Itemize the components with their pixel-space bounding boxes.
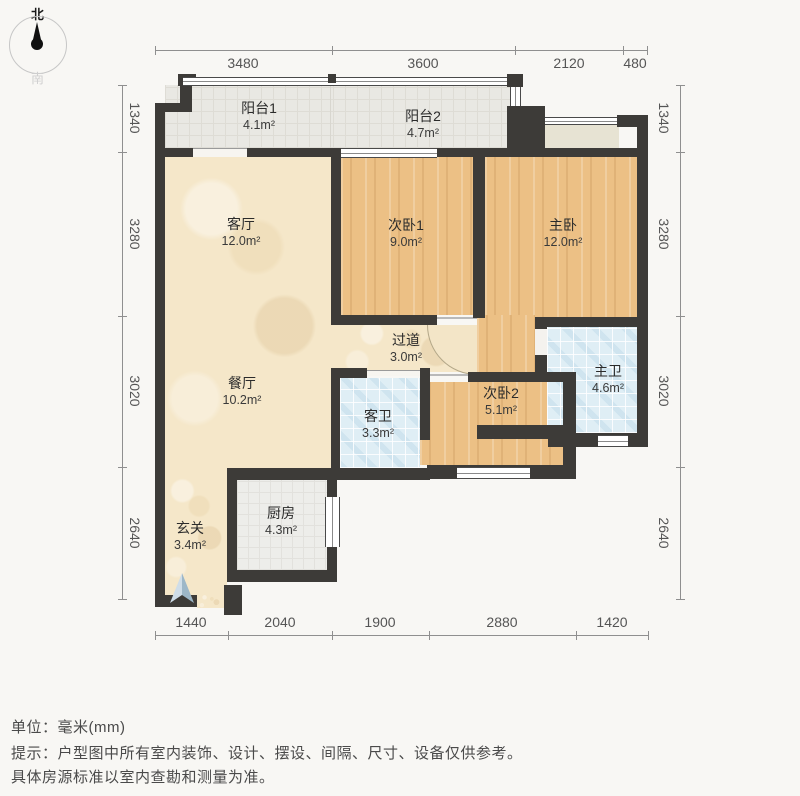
- bedroom2-door-lintel: [430, 374, 468, 376]
- wall-entry-block: [224, 585, 242, 615]
- room-label-balcony2: 阳台2 4.7m²: [405, 108, 441, 141]
- dim-tick: [676, 467, 685, 468]
- dim-right-1: 1340: [656, 102, 672, 133]
- dim-tick: [429, 631, 430, 640]
- dim-bottom-4: 2880: [486, 614, 517, 630]
- dim-tick: [332, 46, 333, 55]
- dim-tick: [118, 316, 127, 317]
- room-name: 厨房: [265, 505, 297, 523]
- wall-bedroom1-master-divider: [473, 148, 485, 318]
- room-area: 4.3m²: [265, 523, 297, 539]
- room-area: 9.0m²: [388, 235, 424, 251]
- bedroom-corridor-floor: [477, 315, 535, 372]
- room-name: 玄关: [174, 520, 206, 538]
- room-area: 4.7m²: [405, 126, 441, 142]
- bedroom1-door-lintel: [437, 317, 477, 319]
- room-name: 阳台2: [405, 108, 441, 126]
- kitchen-door: [325, 497, 340, 547]
- dim-tick: [648, 631, 649, 640]
- entry-arrow-icon: [168, 572, 196, 606]
- wall-balcony-bottom-seg3: [437, 148, 648, 157]
- room-name: 次卧1: [388, 217, 424, 235]
- compass-needle-dot: [31, 38, 43, 50]
- dim-right-2: 3280: [656, 218, 672, 249]
- dim-tick: [647, 46, 648, 55]
- room-name: 主卧: [544, 217, 583, 235]
- room-area: 4.1m²: [241, 118, 277, 134]
- room-area: 12.0m²: [222, 234, 261, 250]
- guestbath-door: [367, 370, 420, 376]
- balcony-right-window: [510, 87, 521, 108]
- dim-right-3: 3020: [656, 375, 672, 406]
- floorplan-page: { "compass": {"north": "北", "south": "南"…: [0, 0, 800, 796]
- bedroom2-window: [457, 467, 530, 479]
- room-label-guest-bath: 客卫 3.3m²: [362, 408, 394, 441]
- room-label-hallway: 过道 3.0m²: [390, 332, 422, 365]
- room-area: 3.0m²: [390, 350, 422, 366]
- dim-tick: [676, 85, 685, 86]
- room-name: 次卧2: [483, 385, 519, 403]
- wall-balcony-bottom-seg1: [165, 148, 193, 157]
- room-label-master-bath: 主卫 4.6m²: [592, 363, 624, 396]
- footer-disclaimer-2: 具体房源标准以室内查勘和测量为准。: [11, 766, 275, 787]
- dim-line-right: [680, 85, 681, 599]
- balcony-top-window: [183, 77, 511, 86]
- room-label-bedroom2: 次卧2 5.1m²: [483, 385, 519, 418]
- room-label-entry: 玄关 3.4m²: [174, 520, 206, 553]
- room-area: 4.6m²: [592, 381, 624, 397]
- dim-top-1: 3480: [227, 55, 258, 71]
- dim-left-3: 3020: [127, 375, 143, 406]
- wall-bedroom1-bottom: [331, 315, 437, 325]
- room-area: 12.0m²: [544, 235, 583, 251]
- entry-door-patch: [197, 595, 224, 608]
- dim-tick: [155, 46, 156, 55]
- room-label-kitchen: 厨房 4.3m²: [265, 505, 297, 538]
- dim-left-2: 3280: [127, 218, 143, 249]
- wall-balcony-bottom-seg2: [247, 148, 337, 157]
- wall-bedroom1-left: [331, 148, 341, 325]
- room-name: 过道: [390, 332, 422, 350]
- dim-tick: [118, 467, 127, 468]
- dim-tick: [676, 316, 685, 317]
- dim-bottom-2: 2040: [264, 614, 295, 630]
- dim-left-1: 1340: [127, 102, 143, 133]
- balcony-divider-line: [330, 85, 331, 148]
- dim-top-2: 3600: [407, 55, 438, 71]
- dim-tick: [155, 631, 156, 640]
- room-label-balcony1: 阳台1 4.1m²: [241, 100, 277, 133]
- dim-right-4: 2640: [656, 517, 672, 548]
- wall-kitchen-left: [227, 468, 237, 582]
- bay-recess-window: [545, 117, 619, 125]
- dim-line-left: [122, 85, 123, 599]
- dim-tick: [228, 631, 229, 640]
- wall-bedroom2-top: [468, 372, 540, 382]
- living-dining-floor: [165, 152, 331, 468]
- wall-masterbath-left-upper: [535, 317, 547, 329]
- room-name: 客厅: [222, 216, 261, 234]
- room-area: 3.3m²: [362, 426, 394, 442]
- room-label-master: 主卧 12.0m²: [544, 217, 583, 250]
- room-label-dining: 餐厅 10.2m²: [223, 375, 262, 408]
- dim-tick: [118, 152, 127, 153]
- wall-bedroom2-left: [420, 368, 430, 440]
- dim-tick: [676, 599, 685, 600]
- dim-top-3: 2120: [553, 55, 584, 71]
- dim-tick: [576, 631, 577, 640]
- masterbath-door-opening: [535, 329, 547, 355]
- room-name: 阳台1: [241, 100, 277, 118]
- dim-bottom-5: 1420: [596, 614, 627, 630]
- dim-top-4: 480: [623, 55, 646, 71]
- room-label-bedroom1: 次卧1 9.0m²: [388, 217, 424, 250]
- balcony-floor: [165, 85, 511, 148]
- compass-south-label: 南: [31, 68, 44, 87]
- dim-bottom-1: 1440: [175, 614, 206, 630]
- bay-recess-floor: [545, 123, 619, 150]
- dim-bottom-3: 1900: [364, 614, 395, 630]
- compass: 北 南: [6, 2, 70, 88]
- dim-tick: [515, 46, 516, 55]
- room-area: 3.4m²: [174, 538, 206, 554]
- dim-tick: [118, 85, 127, 86]
- wall-bedroom2-inner-bar: [477, 425, 567, 439]
- wall-masterbath-top: [535, 317, 648, 327]
- balcony-living-slider: [193, 148, 247, 157]
- room-name: 客卫: [362, 408, 394, 426]
- dim-left-4: 2640: [127, 517, 143, 548]
- wall-glazing-post-right: [507, 74, 523, 87]
- balcony-bedroom1-window: [337, 148, 437, 158]
- room-name: 餐厅: [223, 375, 262, 393]
- dim-tick: [623, 46, 624, 55]
- footer-unit-note: 单位：毫米(mm): [11, 716, 125, 737]
- wall-left: [155, 103, 165, 607]
- dim-tick: [332, 631, 333, 640]
- dim-tick: [118, 599, 127, 600]
- footer-disclaimer-1: 提示：户型图中所有室内装饰、设计、摆设、间隔、尺寸、设备仅供参考。: [11, 742, 523, 763]
- wall-kitchen-bottom: [227, 570, 337, 582]
- room-name: 主卫: [592, 363, 624, 381]
- dim-tick: [676, 152, 685, 153]
- wall-right: [637, 115, 648, 447]
- dim-line-top: [155, 50, 648, 51]
- wall-glazing-mid-tick: [328, 74, 336, 83]
- room-area: 10.2m²: [223, 393, 262, 409]
- room-label-living: 客厅 12.0m²: [222, 216, 261, 249]
- wall-guestbath-left: [331, 368, 340, 468]
- masterbath-window: [598, 435, 628, 447]
- wall-bedroom2-right: [563, 372, 576, 465]
- room-area: 5.1m²: [483, 403, 519, 419]
